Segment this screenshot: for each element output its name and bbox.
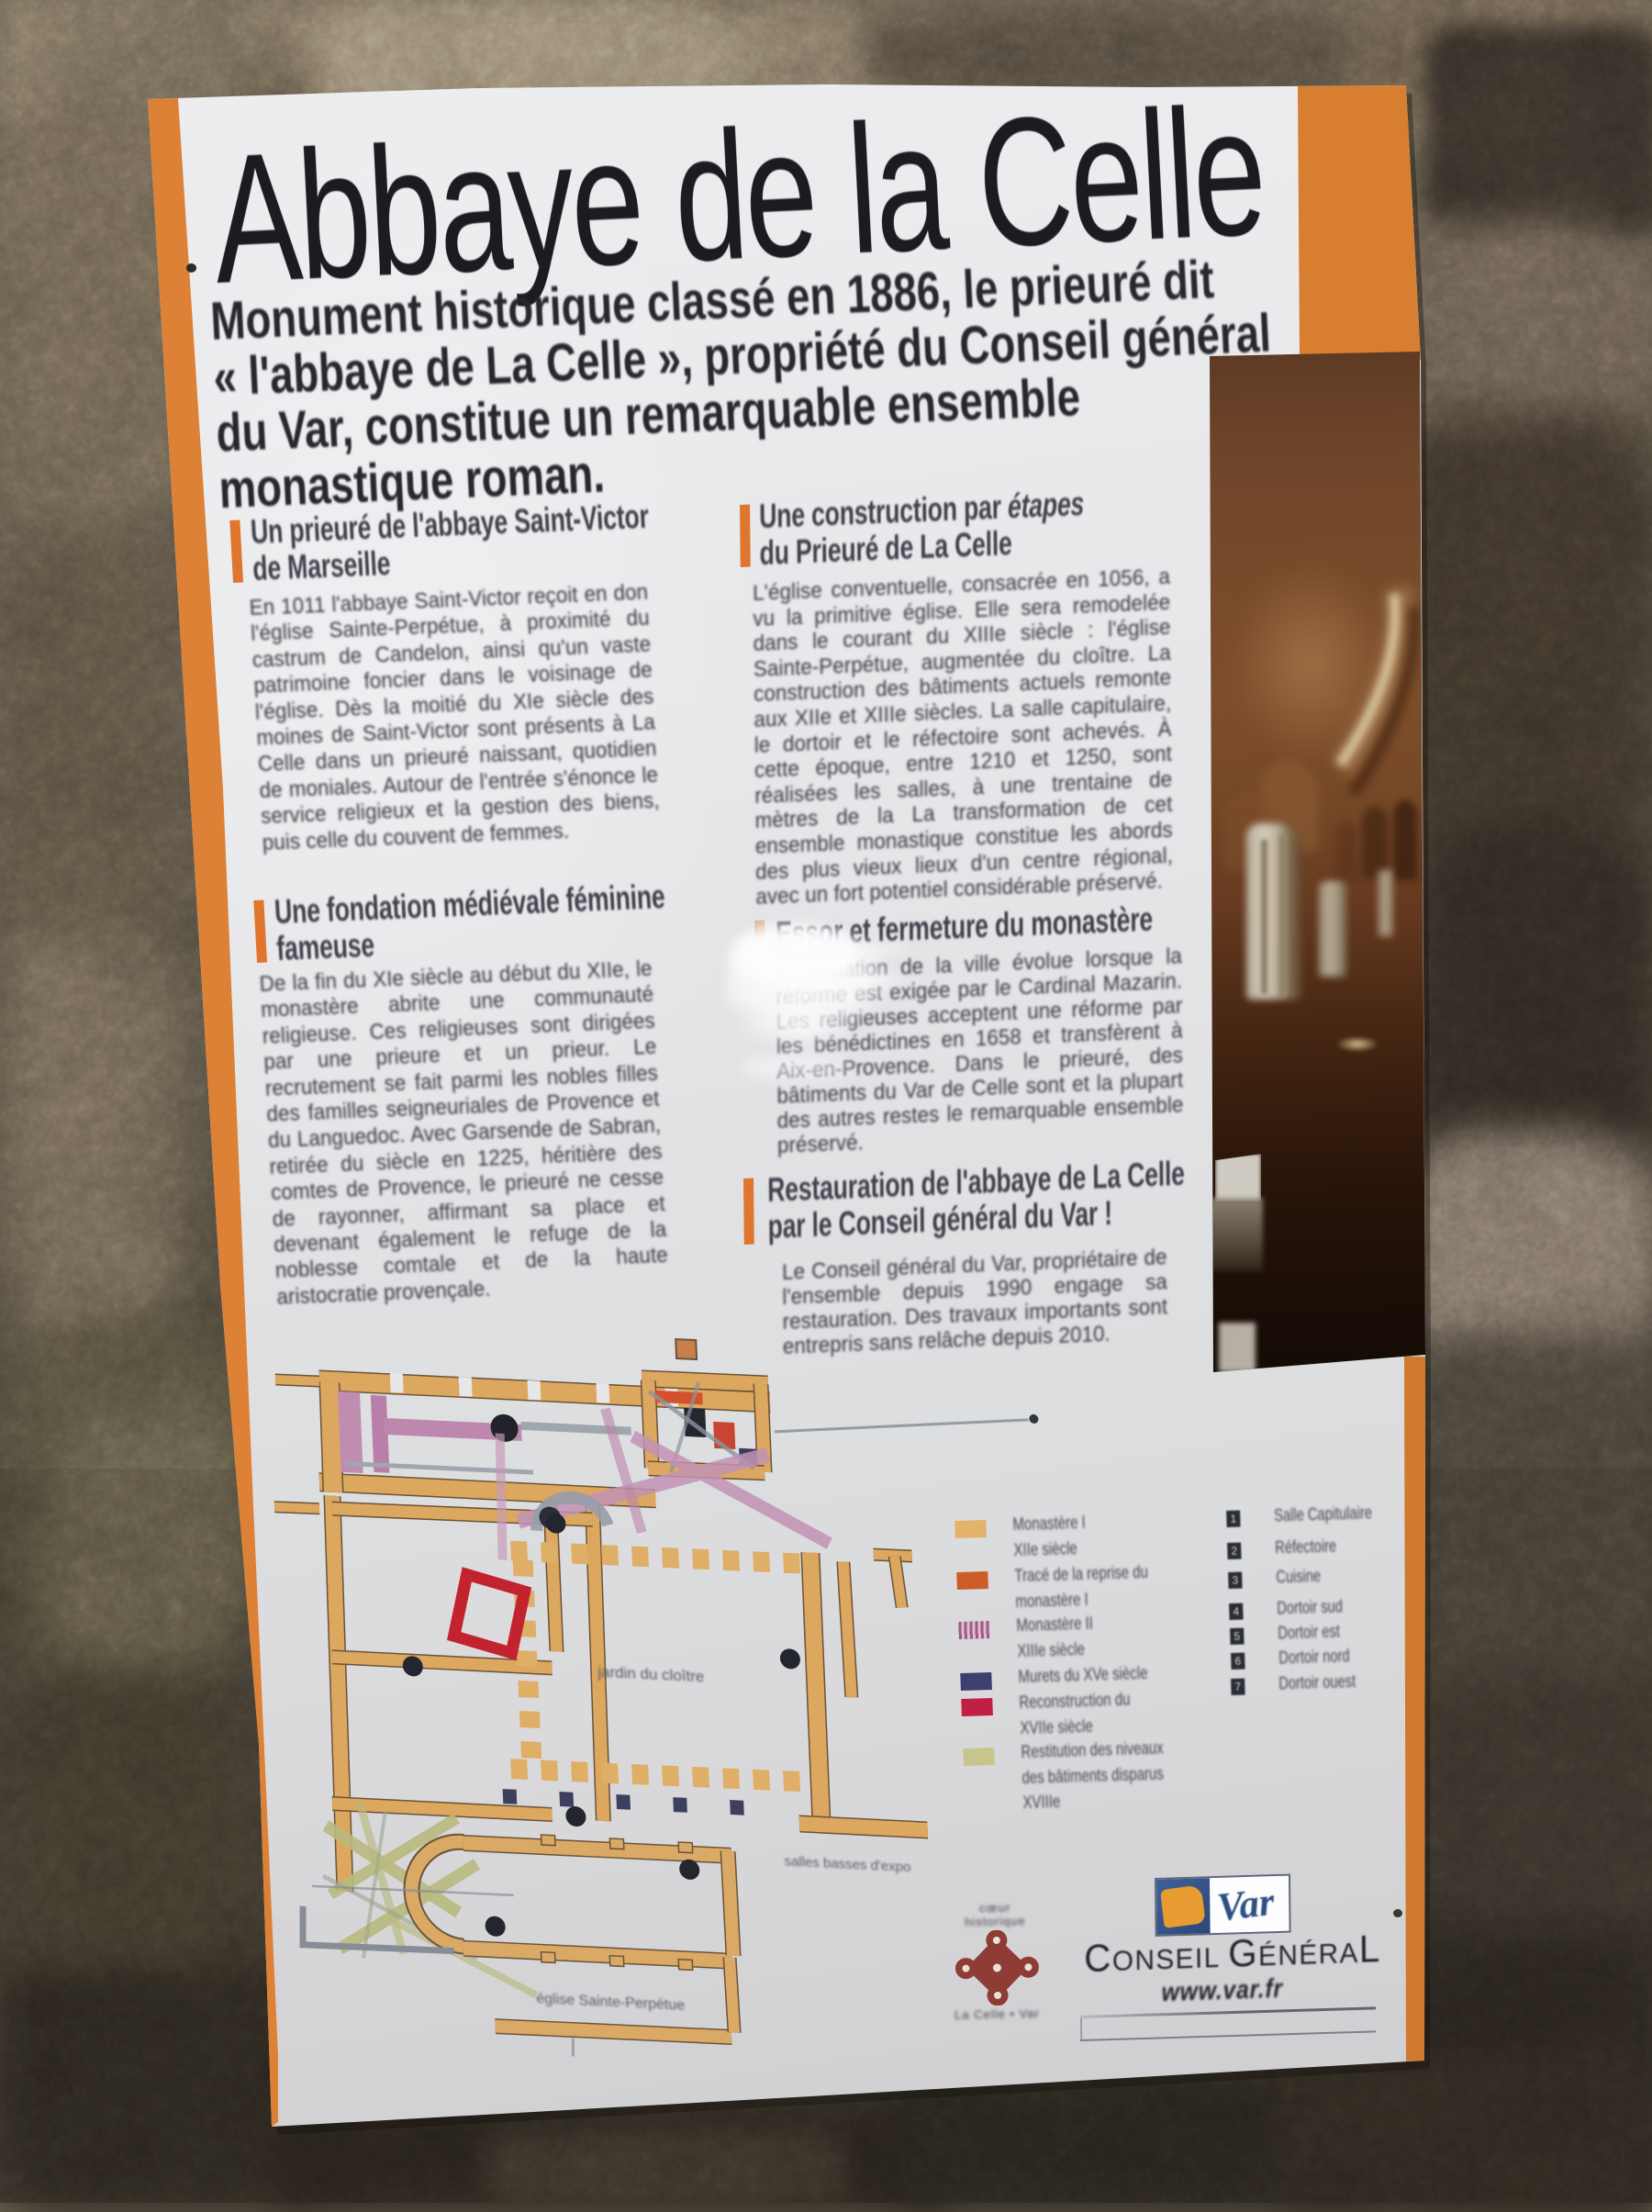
svg-text:salles basses d'expo: salles basses d'expo: [784, 1853, 911, 1875]
svg-text:jardin du cloître: jardin du cloître: [597, 1663, 705, 1686]
svg-text:Var: Var: [1215, 1880, 1278, 1929]
svg-text:église Sainte-Perpétue: église Sainte-Perpétue: [536, 1991, 686, 2014]
